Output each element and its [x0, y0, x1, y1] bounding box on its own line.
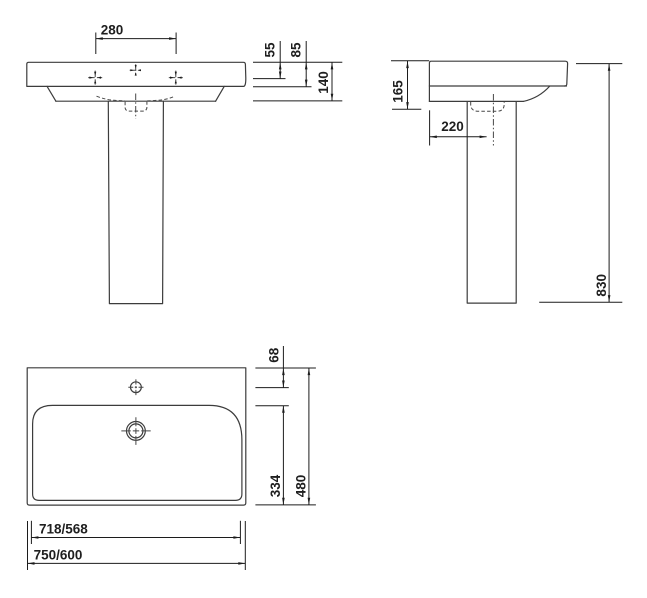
svg-text:830: 830 — [594, 274, 609, 297]
svg-text:68: 68 — [266, 347, 281, 363]
svg-text:55: 55 — [262, 42, 277, 58]
svg-text:140: 140 — [316, 71, 331, 94]
svg-text:280: 280 — [101, 23, 124, 38]
svg-text:165: 165 — [390, 80, 405, 103]
svg-text:85: 85 — [288, 42, 303, 58]
svg-text:718/568: 718/568 — [39, 521, 88, 536]
svg-text:750/600: 750/600 — [34, 548, 83, 563]
svg-text:480: 480 — [293, 475, 308, 498]
svg-text:334: 334 — [268, 474, 283, 497]
svg-text:220: 220 — [441, 119, 464, 134]
